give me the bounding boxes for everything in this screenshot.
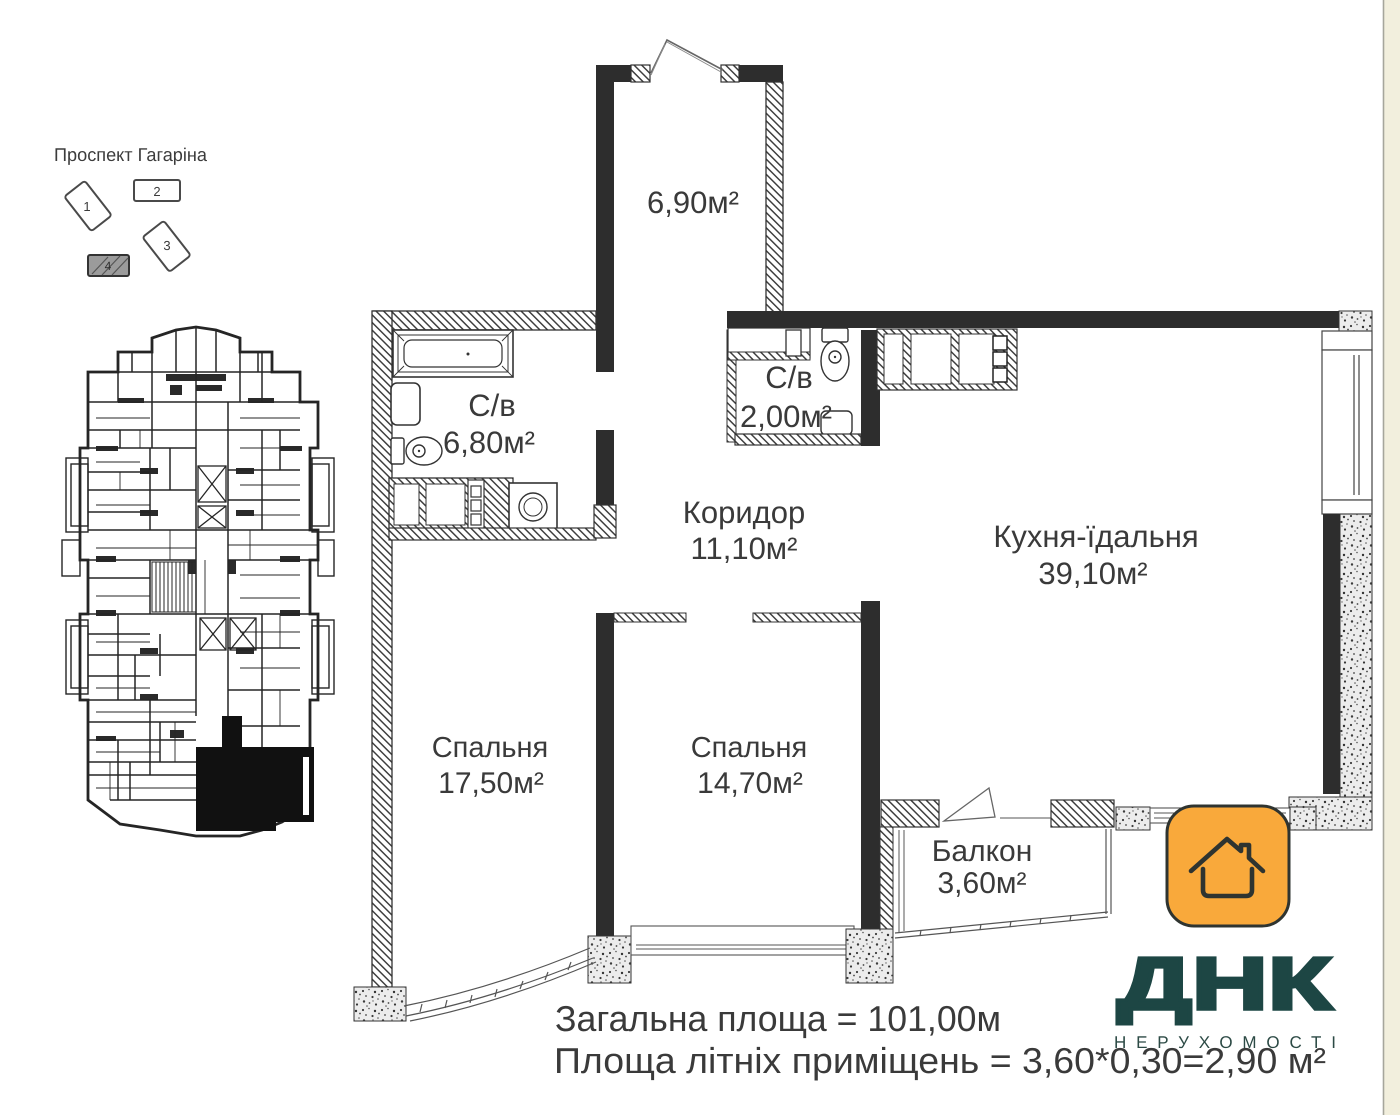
svg-text:1: 1 [83, 199, 90, 214]
svg-text:6,80м²: 6,80м² [443, 425, 535, 460]
svg-text:6,90м²: 6,90м² [647, 185, 739, 220]
svg-text:3: 3 [163, 238, 170, 253]
svg-text:Балкон: Балкон [932, 835, 1033, 868]
svg-text:Площа літніх приміщень = 3,60*: Площа літніх приміщень = 3,60*0,30=2,90 … [554, 1040, 1326, 1081]
svg-text:ДНК: ДНК [1117, 942, 1333, 1025]
svg-text:Проспект Гагаріна: Проспект Гагаріна [54, 144, 208, 165]
svg-text:Коридор: Коридор [683, 495, 805, 530]
svg-text:11,10м²: 11,10м² [691, 531, 798, 566]
svg-text:Кухня-їдальня: Кухня-їдальня [993, 519, 1198, 554]
svg-text:Спальня: Спальня [691, 732, 808, 764]
svg-text:4: 4 [105, 259, 112, 273]
svg-text:С/в: С/в [468, 388, 515, 423]
svg-text:39,10м²: 39,10м² [1038, 556, 1147, 591]
svg-text:Загальна площа = 101,00м: Загальна площа = 101,00м [555, 998, 1001, 1039]
svg-text:Спальня: Спальня [432, 732, 549, 764]
svg-text:2: 2 [153, 184, 160, 199]
svg-text:С/в: С/в [765, 360, 812, 395]
svg-text:17,50м²: 17,50м² [438, 767, 544, 800]
svg-text:2,00м²: 2,00м² [740, 399, 832, 434]
svg-text:3,60м²: 3,60м² [937, 867, 1026, 900]
svg-text:14,70м²: 14,70м² [697, 767, 803, 800]
